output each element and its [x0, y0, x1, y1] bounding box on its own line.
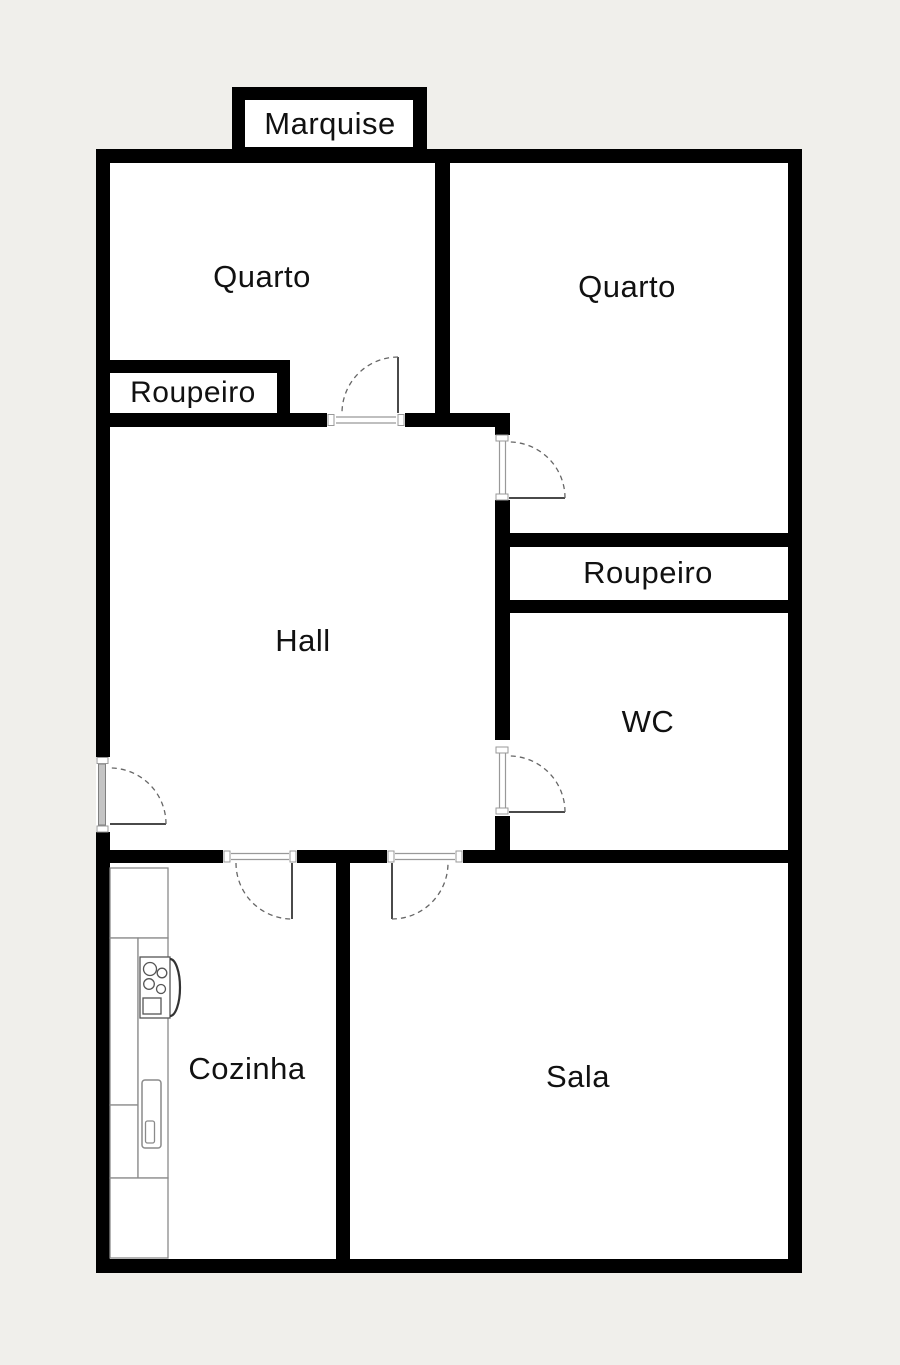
- door-arc: [236, 863, 292, 919]
- label-wc: WC: [622, 704, 675, 740]
- door-quarto-left: [328, 357, 404, 426]
- label-marquise: Marquise: [264, 106, 396, 142]
- door-wc: [496, 747, 565, 814]
- label-cozinha: Cozinha: [188, 1051, 305, 1087]
- label-roupeiro-left: Roupeiro: [130, 376, 256, 410]
- door-arc: [342, 357, 398, 413]
- door-arc: [509, 756, 565, 812]
- label-quarto-right: Quarto: [578, 269, 676, 305]
- label-quarto-left: Quarto: [213, 259, 311, 295]
- floor-plan: Marquise Quarto Quarto Roupeiro Roupeiro…: [0, 0, 900, 1365]
- stove-icon: [140, 957, 180, 1018]
- label-hall: Hall: [275, 623, 330, 659]
- door-sala: [388, 851, 462, 919]
- doors-and-fixtures-graphics: [0, 0, 900, 1365]
- door-arc: [110, 768, 166, 824]
- label-roupeiro-right: Roupeiro: [583, 555, 713, 591]
- label-sala: Sala: [546, 1059, 610, 1095]
- kitchen-counter: [110, 868, 168, 1258]
- door-cozinha: [224, 851, 296, 919]
- door-arc: [392, 863, 448, 919]
- door-arc: [509, 442, 565, 498]
- sink-icon: [142, 1080, 161, 1148]
- door-quarto-right: [496, 435, 565, 500]
- entrance-door: [96, 757, 166, 832]
